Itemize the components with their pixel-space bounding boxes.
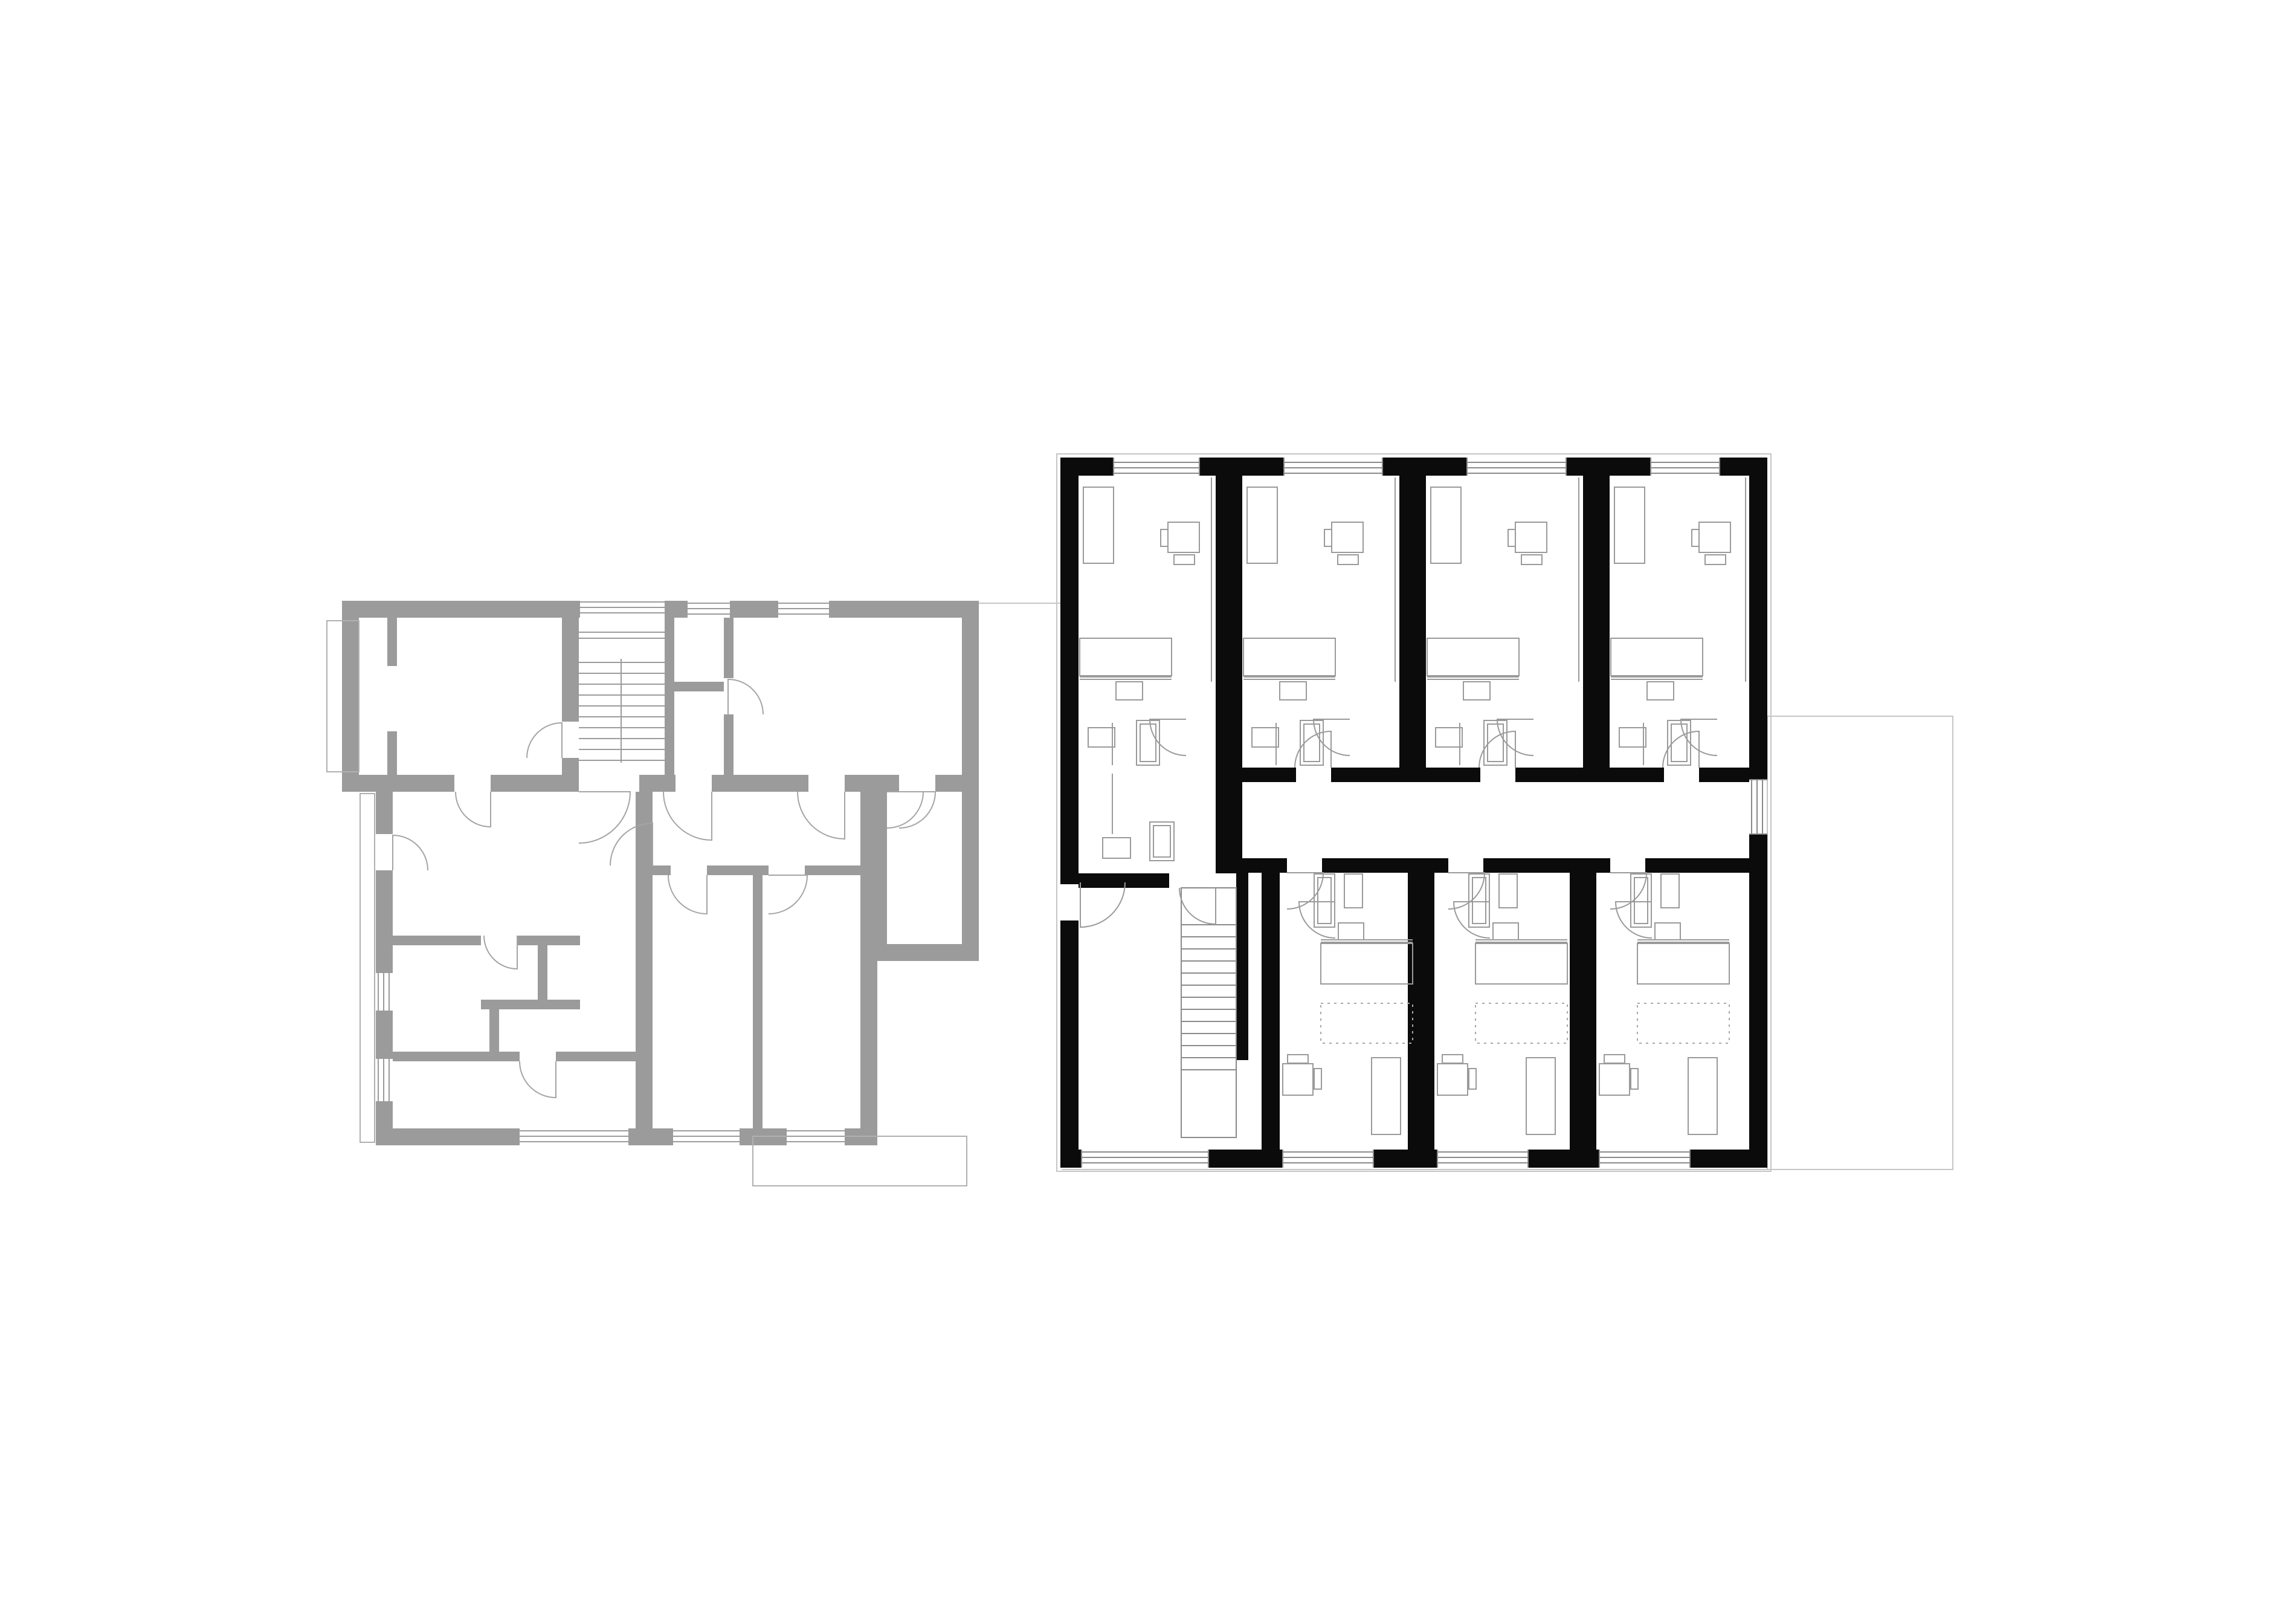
drawing-sheet — [0, 0, 2296, 1624]
floor-plan-canvas — [0, 0, 2296, 1624]
sheet-background — [0, 0, 2296, 1624]
